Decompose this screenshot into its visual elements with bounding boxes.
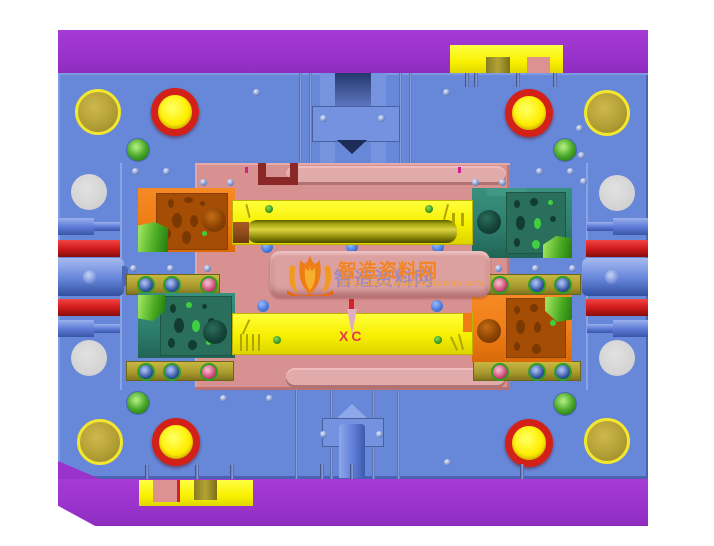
- green-plug[interactable]: [126, 138, 150, 162]
- gib-screw: [528, 363, 546, 381]
- support-rod[interactable]: [58, 218, 94, 235]
- screw: [499, 179, 506, 186]
- support-rod[interactable]: [587, 222, 613, 231]
- vent-dot: [265, 205, 273, 213]
- guide-bushing[interactable]: [75, 89, 121, 135]
- gib-screw: [163, 363, 181, 381]
- screw: [532, 265, 539, 272]
- upper-core-insert[interactable]: [232, 200, 473, 245]
- sprue-recess: [335, 73, 371, 107]
- vent-dot: [434, 336, 442, 344]
- gib-screw: [200, 363, 218, 381]
- slider-bore: [202, 208, 226, 232]
- gib-screw: [491, 276, 509, 294]
- slider-bore: [477, 319, 501, 343]
- screw: [569, 265, 576, 272]
- hatch-line: [240, 334, 242, 351]
- guide-bushing[interactable]: [584, 90, 630, 136]
- guide-pin[interactable]: [505, 89, 553, 137]
- screw: [443, 89, 450, 96]
- guide-pin[interactable]: [151, 88, 199, 136]
- screw: [567, 168, 574, 175]
- sprue-bracket: [258, 177, 298, 185]
- datum-tick: [245, 167, 248, 173]
- guide-bushing[interactable]: [77, 419, 123, 465]
- gib-screw: [200, 276, 218, 294]
- green-plug[interactable]: [553, 392, 577, 416]
- locating-block-bottom[interactable]: [139, 480, 253, 506]
- waterline-port: [431, 300, 443, 312]
- watermark-title: 智造资料网: [338, 256, 438, 283]
- green-plug[interactable]: [126, 391, 150, 415]
- cylinder-port: [83, 270, 97, 284]
- screw: [320, 431, 327, 438]
- screw: [320, 115, 327, 122]
- cylinder-port: [605, 270, 619, 284]
- support-rod[interactable]: [94, 324, 120, 333]
- screw: [266, 395, 273, 402]
- slider-tab-orange: [463, 313, 472, 332]
- support-rod[interactable]: [613, 218, 648, 235]
- screw: [578, 152, 585, 159]
- gib-screw: [137, 363, 155, 381]
- red-spacer-bar[interactable]: [58, 299, 120, 316]
- gate-needle: [346, 299, 358, 339]
- arrow-up-icon: [337, 404, 367, 418]
- red-spacer-bar[interactable]: [586, 240, 648, 257]
- gib-screw: [491, 363, 509, 381]
- dowel-pin: [320, 464, 324, 479]
- return-pin[interactable]: [71, 340, 107, 376]
- guide-pin[interactable]: [505, 419, 553, 467]
- groove-line: [397, 390, 400, 479]
- support-rod[interactable]: [94, 222, 120, 231]
- dowel-pin: [553, 73, 557, 87]
- hatch-line: [242, 319, 251, 334]
- screw: [495, 265, 502, 272]
- green-plug[interactable]: [553, 138, 577, 162]
- gib-screw: [163, 276, 181, 294]
- core-end-cap: [233, 222, 249, 243]
- vent-dot: [425, 205, 433, 213]
- screw: [163, 168, 170, 175]
- dowel-pin: [350, 464, 354, 479]
- slider-block-teal-bottom-left[interactable]: [138, 293, 235, 358]
- groove-line: [295, 390, 298, 479]
- guide-bushing[interactable]: [584, 418, 630, 464]
- hatch-line: [258, 334, 260, 351]
- screw: [204, 265, 211, 272]
- groove-line: [299, 73, 302, 163]
- gib-screw: [137, 276, 155, 294]
- support-rod[interactable]: [613, 320, 648, 337]
- hatch-line: [246, 334, 248, 351]
- screw: [200, 179, 207, 186]
- block-insert-pink: [527, 57, 550, 73]
- dowel-pin: [516, 73, 520, 87]
- screw: [444, 459, 451, 466]
- screw: [536, 168, 543, 175]
- dowel-pin: [195, 465, 199, 479]
- support-rod[interactable]: [58, 320, 94, 337]
- red-spacer-bar[interactable]: [58, 240, 120, 257]
- notch-line: [458, 334, 464, 350]
- dowel-pin: [474, 73, 478, 87]
- notch-line: [443, 204, 449, 220]
- screw: [376, 431, 383, 438]
- slider-block-teal-top-right[interactable]: [472, 188, 572, 258]
- slider-bore: [203, 320, 227, 344]
- screw: [576, 125, 583, 132]
- notch-line: [450, 336, 458, 350]
- dowel-pin: [465, 73, 469, 87]
- support-rod[interactable]: [587, 324, 613, 333]
- screw: [253, 89, 260, 96]
- locating-block-top[interactable]: [450, 45, 563, 73]
- waterline-port: [257, 300, 269, 312]
- red-spacer-bar[interactable]: [586, 299, 648, 316]
- guide-pin[interactable]: [152, 418, 200, 466]
- groove-line: [409, 73, 412, 163]
- return-pin[interactable]: [599, 175, 635, 211]
- screw: [132, 168, 139, 175]
- watermark-logo-flame-book-icon: [284, 252, 336, 296]
- screw: [167, 265, 174, 272]
- return-pin[interactable]: [599, 340, 635, 376]
- slider-block-orange-bottom-right[interactable]: [472, 295, 572, 362]
- cad-viewport: XC 智造资料网 INTELLIGENT MANUFACTURING DATA: [0, 0, 714, 546]
- screw: [580, 178, 587, 185]
- gib-screw: [554, 276, 572, 294]
- block-insert-red-line: [177, 480, 180, 502]
- return-pin[interactable]: [71, 174, 107, 210]
- wear-plate-green: [138, 222, 168, 252]
- vent-dot: [273, 336, 281, 344]
- notch-line: [452, 213, 455, 226]
- block-insert-pink: [153, 480, 177, 502]
- slider-bore: [477, 210, 501, 234]
- core-cylinder: [247, 220, 457, 243]
- slider-block-orange-top-left[interactable]: [138, 188, 235, 252]
- screw: [472, 179, 479, 186]
- screw: [227, 179, 234, 186]
- dowel-pin: [145, 465, 149, 479]
- datum-tick: [458, 167, 461, 173]
- notch-line: [461, 213, 464, 226]
- screw: [130, 265, 137, 272]
- gib-screw: [528, 276, 546, 294]
- sprue-bridge: [312, 106, 400, 142]
- watermark-subtitle: INTELLIGENT MANUFACTURING DATA: [340, 281, 485, 288]
- hatch-line: [252, 334, 254, 351]
- block-insert-olive: [486, 57, 510, 73]
- gib-screw: [554, 363, 572, 381]
- screw: [378, 115, 385, 122]
- screw: [220, 395, 227, 402]
- block-insert-olive: [194, 480, 217, 500]
- notch-line: [245, 204, 250, 218]
- dowel-pin: [230, 465, 234, 479]
- dowel-pin: [520, 464, 524, 479]
- arrow-down-icon: [337, 140, 367, 154]
